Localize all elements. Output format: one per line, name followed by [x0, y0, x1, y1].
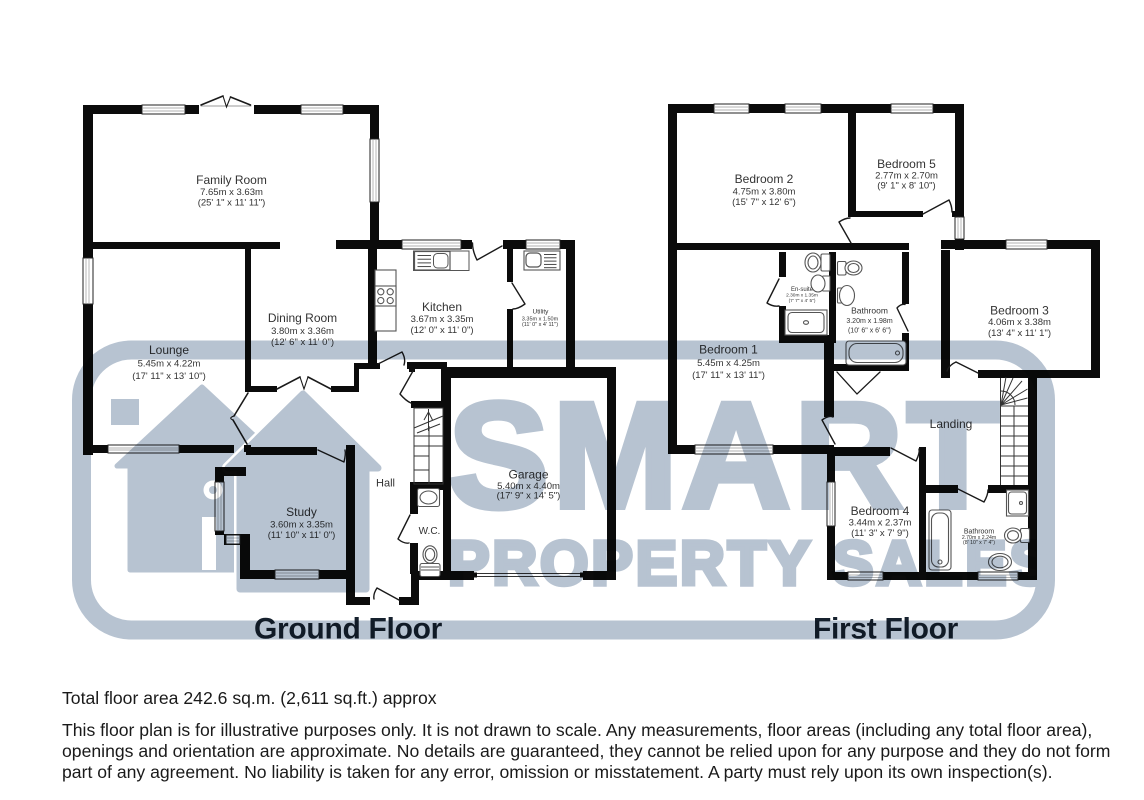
svg-text:PROPERTY SALES: PROPERTY SALES: [448, 530, 1054, 599]
svg-text:SMART: SMART: [449, 371, 1003, 539]
